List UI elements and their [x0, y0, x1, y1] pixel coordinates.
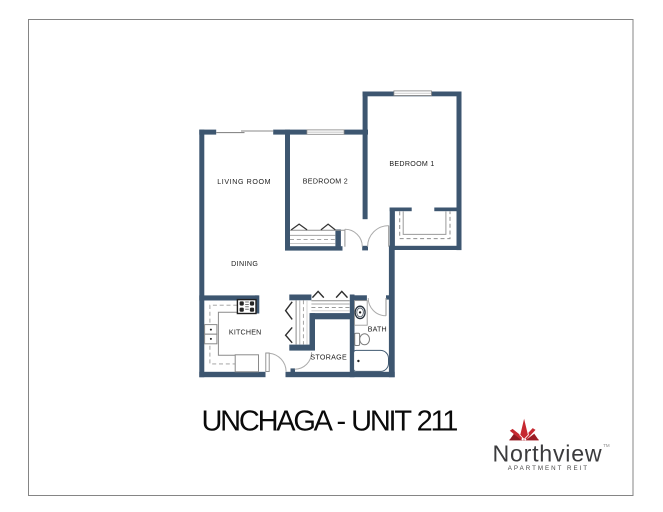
svg-text:UNCHAGA - UNIT 211: UNCHAGA - UNIT 211: [201, 405, 457, 437]
svg-text:Northview: Northview: [493, 440, 603, 466]
svg-text:KITCHEN: KITCHEN: [229, 328, 262, 336]
svg-text:APARTMENT REIT: APARTMENT REIT: [508, 465, 589, 472]
svg-text:TM: TM: [603, 443, 610, 448]
svg-text:DINING: DINING: [231, 260, 258, 268]
svg-text:BEDROOM 2: BEDROOM 2: [303, 177, 348, 185]
svg-text:BEDROOM 1: BEDROOM 1: [389, 160, 434, 168]
svg-text:LIVING ROOM: LIVING ROOM: [217, 178, 271, 186]
svg-text:STORAGE: STORAGE: [310, 353, 347, 361]
svg-text:BATH: BATH: [368, 325, 387, 333]
